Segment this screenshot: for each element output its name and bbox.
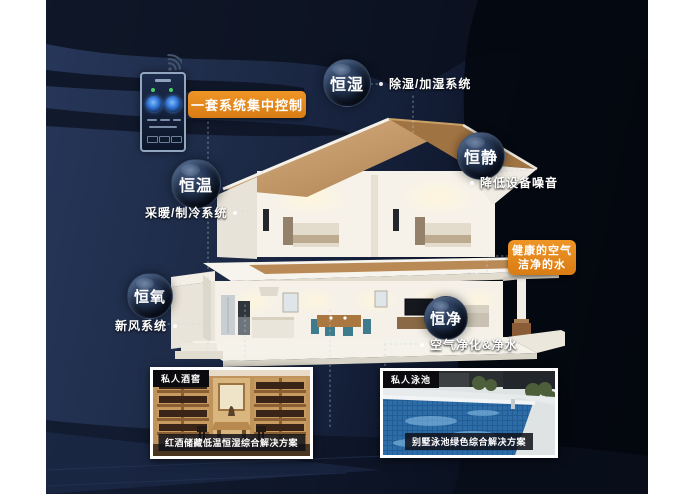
note-label: 采暖/制冷系统 [145,204,227,221]
connector-dot [420,343,424,347]
connector-dot [173,324,177,328]
bubble-label: 恒湿 [330,71,364,95]
central-control-label: 一套系统集中控制 [191,95,303,114]
note-noise-reduction: 降低设备噪音 [470,174,558,191]
note-label: 降低设备噪音 [480,174,558,191]
kitchen-cabinets [252,320,294,338]
bubble-label: 恒静 [464,144,498,168]
porch-column [517,279,526,325]
note-air-water-purify: 空气净化&净水 [420,336,518,353]
bedroom-tv [263,209,269,231]
note-label: 新风系统 [115,317,167,334]
health-line1: 健康的空气 [512,244,572,258]
panel-title-bar [155,79,171,82]
dining-table [317,315,361,327]
health-badge: 健康的空气 洁净的水 [508,240,576,275]
connector-dot [233,211,237,215]
note-label: 除湿/加湿系统 [389,75,471,92]
note-heating-cooling: 采暖/制冷系统 [145,204,237,221]
note-humidity-system: 除湿/加湿系统 [379,75,471,92]
bubble-constant-humidity: 恒湿 [323,59,371,107]
poster-scene: 一套系统集中控制 健康的空气 洁净的水 恒湿 恒静 恒温 恒氧 恒净 除湿/加湿… [46,0,648,494]
panel-knob-right [165,96,181,112]
connector-dot [379,82,383,86]
panel-knob-left [146,96,162,112]
pool-card-tag: 私人泳池 [383,371,439,388]
wine-cellar-card: 私人酒窖 红酒储藏低温恒湿综合解决方案 [150,367,313,459]
note-fresh-air: 新风系统 [115,317,177,334]
health-line2: 洁净的水 [518,258,566,272]
bubble-label: 恒温 [179,172,213,196]
poster-canvas: 一套系统集中控制 健康的空气 洁净的水 恒湿 恒静 恒温 恒氧 恒净 除湿/加湿… [0,0,700,497]
connector-dot [470,181,474,185]
bubble-constant-quiet: 恒静 [457,132,505,180]
oven [238,301,250,317]
bubble-constant-oxygen: 恒氧 [127,273,173,319]
range-hood [259,287,279,296]
bubble-constant-purity: 恒净 [424,296,468,340]
control-panel-device [140,72,186,152]
house-illustration [165,105,565,375]
wine-card-caption: 红酒储藏低温恒湿综合解决方案 [158,434,305,451]
pool-card-caption: 别墅泳池绿色综合解决方案 [405,433,533,450]
wine-card-tag: 私人酒窖 [153,370,209,387]
bubble-label: 恒净 [430,308,462,329]
bubble-constant-temperature: 恒温 [171,159,221,209]
pool-card: 私人泳池 别墅泳池绿色综合解决方案 [380,368,558,458]
wifi-icon [158,52,182,74]
bubble-label: 恒氧 [134,286,166,307]
note-label: 空气净化&净水 [430,336,518,353]
central-control-badge: 一套系统集中控制 [188,91,306,118]
